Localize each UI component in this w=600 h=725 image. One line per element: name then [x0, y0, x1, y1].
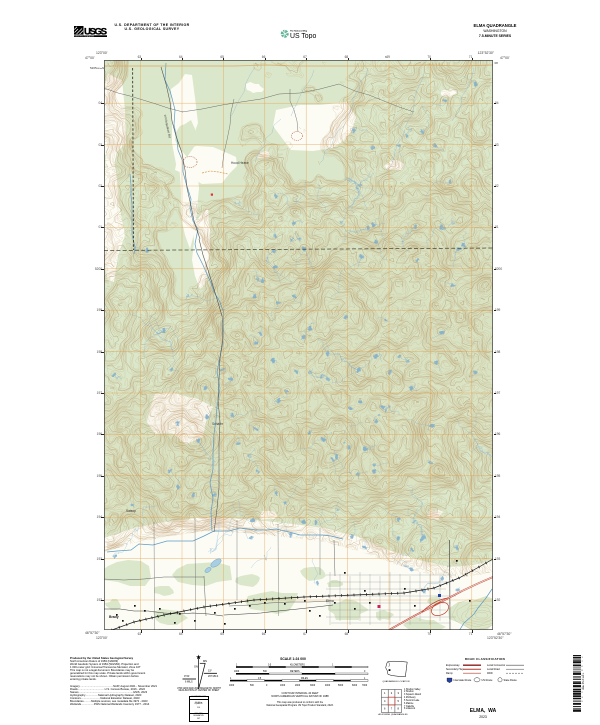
svg-text:7000: 7000 [362, 685, 368, 687]
svg-text:3: 3 [398, 691, 400, 695]
svg-text:Hood Heave: Hood Heave [231, 161, 249, 165]
svg-text:US Route: US Route [482, 679, 493, 682]
svg-text:2: 2 [391, 691, 393, 695]
svg-text:5000: 5000 [338, 685, 344, 687]
svg-text:500: 500 [250, 685, 255, 687]
svg-text:MILES: MILES [301, 678, 308, 680]
svg-text:The National Map: The National Map [290, 29, 308, 32]
svg-text:4000: 4000 [325, 685, 331, 687]
svg-text:4: 4 [384, 698, 386, 702]
svg-text:4WD: 4WD [487, 672, 493, 675]
svg-text:1000: 1000 [234, 671, 240, 673]
svg-text:1: 1 [384, 691, 386, 695]
svg-text:5: 5 [398, 698, 400, 702]
svg-text:1000: 1000 [280, 685, 286, 687]
svg-text:MN: MN [203, 659, 207, 663]
svg-text:1000: 1000 [229, 685, 235, 687]
svg-text:0.5: 0.5 [268, 664, 272, 666]
svg-text:KILOMETERS: KILOMETERS [290, 664, 305, 666]
svg-text:6 MILS: 6 MILS [185, 681, 193, 684]
svg-text:500: 500 [263, 671, 268, 673]
svg-text:Expressway: Expressway [446, 664, 460, 667]
svg-text:1: 1 [236, 664, 238, 666]
svg-text:7: 7 [391, 706, 393, 710]
svg-text:6000: 6000 [352, 685, 358, 687]
svg-text:2000: 2000 [295, 685, 301, 687]
svg-text:3000: 3000 [310, 685, 316, 687]
svg-text:US Topo: US Topo [290, 33, 316, 39]
svg-text:8: 8 [398, 706, 400, 710]
svg-text:Local Connector: Local Connector [487, 664, 505, 667]
svg-text:0: 0 [266, 685, 268, 687]
svg-text:Elma: Elma [326, 599, 334, 603]
svg-text:1: 1 [332, 664, 334, 666]
svg-text:1: 1 [230, 678, 232, 680]
svg-text:GN: GN [194, 665, 198, 669]
svg-text:Secondary Hwy: Secondary Hwy [446, 668, 464, 671]
svg-text:Local Road: Local Road [487, 668, 500, 671]
svg-text:State Route: State Route [504, 679, 518, 682]
svg-text:15°: 15° [208, 669, 212, 673]
svg-text:Satsop: Satsop [126, 509, 136, 513]
svg-text:Schafer: Schafer [212, 422, 224, 426]
svg-text:Ramp: Ramp [446, 672, 453, 675]
svg-text:0°21': 0°21' [184, 674, 190, 678]
svg-text:267 MILS: 267 MILS [208, 675, 219, 678]
svg-text:Brady: Brady [109, 615, 119, 619]
svg-text:6: 6 [384, 706, 386, 710]
svg-text:Interstate Route: Interstate Route [454, 679, 472, 682]
